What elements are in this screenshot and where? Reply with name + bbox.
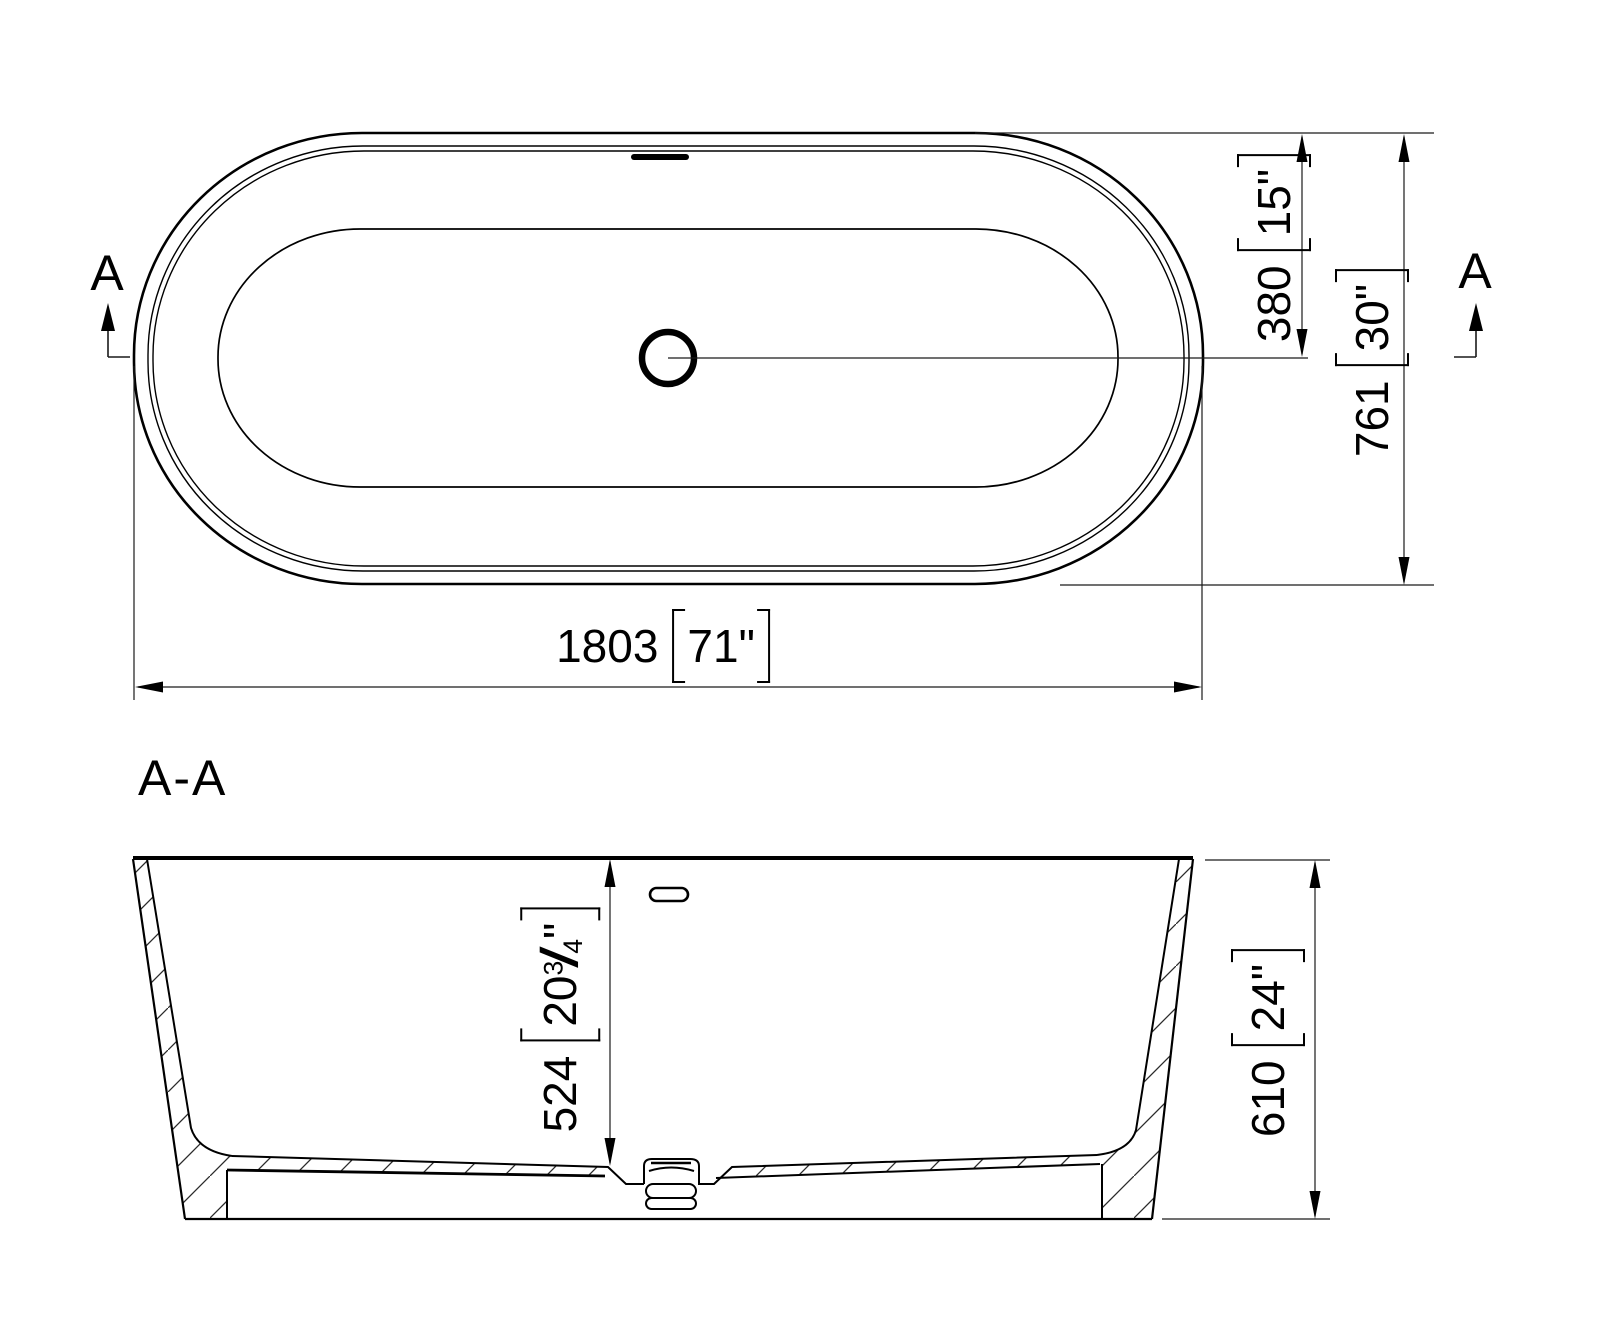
dim-label-overall-width: 761 30" bbox=[1335, 269, 1409, 457]
dim-1803-mm: 1803 bbox=[556, 623, 658, 669]
dim-380-mm: 380 bbox=[1251, 265, 1297, 342]
section-marker-left-arrow bbox=[101, 303, 130, 357]
section-marker-left-label: A bbox=[90, 248, 123, 298]
top-view bbox=[134, 133, 1308, 584]
section-marker-right-arrow bbox=[1454, 303, 1483, 357]
dim-524-inch-fraction: 3/4 bbox=[534, 939, 586, 976]
section-hatch-left-wall bbox=[133, 859, 232, 1219]
dim-380-inch: 15" bbox=[1251, 169, 1297, 237]
overflow-slot-section bbox=[650, 888, 688, 901]
drain-fitting bbox=[644, 1159, 699, 1209]
drawing-canvas bbox=[0, 0, 1600, 1333]
section-title: A-A bbox=[138, 753, 227, 803]
dim-label-inner-depth: 524 203/4" bbox=[520, 908, 600, 1133]
dim-761-inch: 30" bbox=[1349, 284, 1395, 352]
dim-524-mm: 524 bbox=[537, 1056, 583, 1133]
dim-label-overall-length: 1803 71" bbox=[556, 609, 770, 683]
dim-524-inch-whole: 20 bbox=[537, 975, 583, 1026]
dim-610-inch: 24" bbox=[1245, 964, 1291, 1032]
dim-1803-inch: 71" bbox=[687, 623, 755, 669]
dim-524-inch-mark: " bbox=[537, 923, 583, 939]
section-marker-right-label: A bbox=[1458, 246, 1491, 296]
section-hatch-right-wall bbox=[1100, 859, 1193, 1219]
section-view bbox=[133, 858, 1193, 1219]
dim-761-mm: 761 bbox=[1349, 380, 1395, 457]
dim-label-drain-to-edge: 380 15" bbox=[1237, 154, 1311, 342]
dim-label-overall-height: 610 24" bbox=[1231, 949, 1305, 1137]
dim-610-mm: 610 bbox=[1245, 1060, 1291, 1137]
technical-drawing-bathtub: A A 380 15" 761 30" 1803 71" A-A 524 203… bbox=[0, 0, 1600, 1333]
